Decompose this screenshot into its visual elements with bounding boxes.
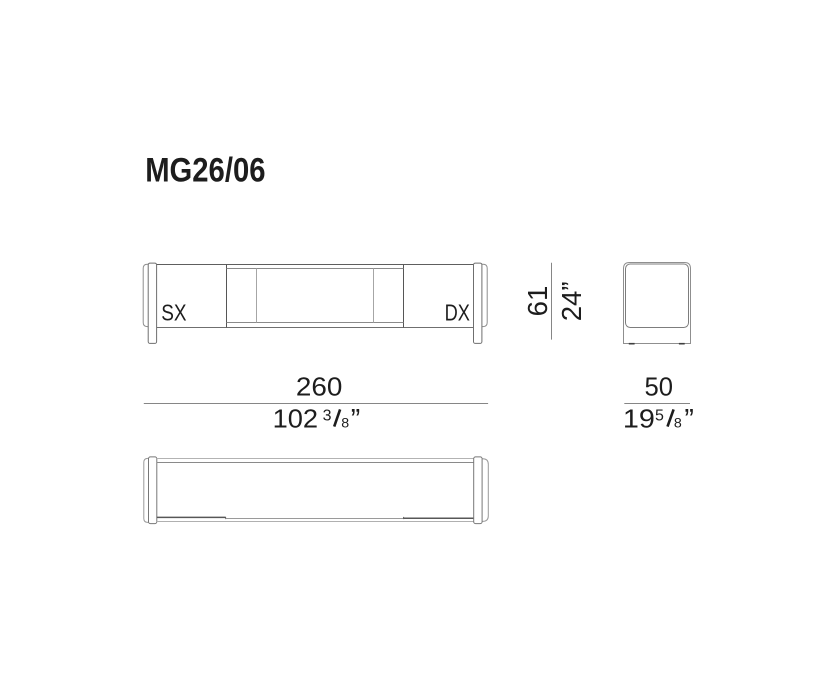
svg-text:260: 260 xyxy=(296,372,343,402)
svg-text:”: ” xyxy=(351,404,361,436)
svg-text:19: 19 xyxy=(623,403,655,433)
svg-text:3: 3 xyxy=(323,407,332,424)
svg-text:5: 5 xyxy=(655,407,664,424)
svg-text:”: ” xyxy=(684,404,694,436)
svg-text:DX: DX xyxy=(445,300,471,326)
svg-text:8: 8 xyxy=(674,415,682,431)
svg-text:50: 50 xyxy=(645,372,674,402)
svg-text:MG26/06: MG26/06 xyxy=(145,151,265,189)
svg-text:24”: 24” xyxy=(556,281,587,321)
svg-text:102: 102 xyxy=(273,403,319,433)
svg-text:8: 8 xyxy=(341,415,349,431)
svg-text:SX: SX xyxy=(161,300,187,326)
svg-text:61: 61 xyxy=(522,286,553,317)
